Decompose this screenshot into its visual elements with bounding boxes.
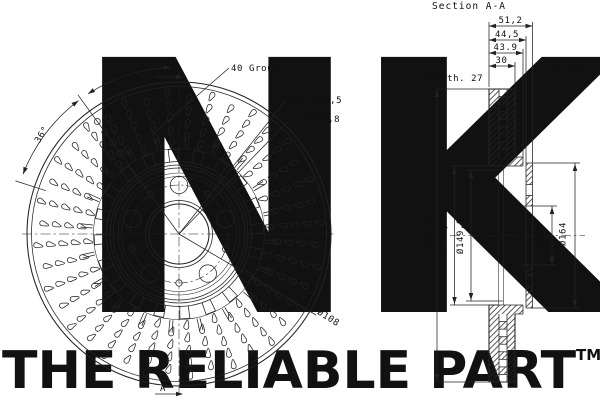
section-title: Section A-A <box>432 1 506 12</box>
dim-hat-outer-diameter: Ø153,7 <box>439 218 450 254</box>
dim-flange-diameter: Ø164 <box>558 222 569 246</box>
dim-outer-diameter: Ø335,8 <box>421 219 432 255</box>
dim-439: 43.9 <box>493 43 517 53</box>
section-marker-bottom: A <box>160 384 166 394</box>
small-hole-dim-label: 5 X Ø6,8 <box>292 114 340 125</box>
brand-trademark-icon: TM <box>547 54 591 84</box>
groups-label: 40 Groups <box>231 64 285 74</box>
technical-drawing: NK TM THE RELIABLE PART TM <box>0 0 600 400</box>
dim-total-width: 51,2 <box>498 16 522 26</box>
dim-445: 44,5 <box>495 30 519 40</box>
bolt-hole-dim-label: 5 X Ø16,5 <box>288 95 342 106</box>
dim-bore-diameter: Ø68 <box>535 225 546 243</box>
slogan-trademark-icon: TM <box>576 346 600 364</box>
min-thickness-note: Min th. 27 <box>423 74 483 84</box>
dim-hat-inner-diameter: Ø149,9 <box>455 218 466 254</box>
dim-thickness: 30 <box>495 56 507 66</box>
angle-dim-label-2: 36° <box>33 125 51 146</box>
brake-disc-technical-drawing: NK TM THE RELIABLE PART TM <box>0 0 600 400</box>
